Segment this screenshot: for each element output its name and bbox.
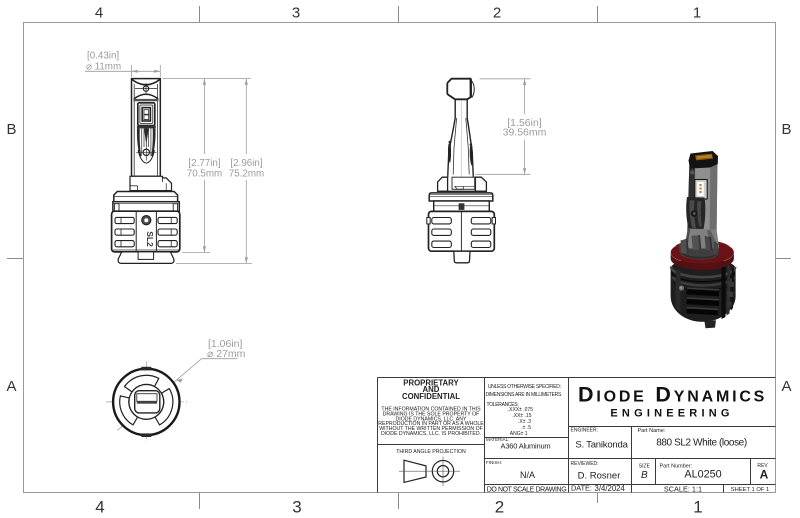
svg-text:AL0250: AL0250	[684, 469, 721, 481]
svg-text:.XXX± .075: .XXX± .075	[508, 407, 533, 413]
svg-text:2: 2	[493, 5, 501, 22]
svg-text:⌀ 11mm: ⌀ 11mm	[86, 62, 121, 73]
svg-text:⌀ 27mm: ⌀ 27mm	[207, 348, 246, 360]
svg-text:UNLESS OTHERWISE SPECIFIED:: UNLESS OTHERWISE SPECIFIED:	[488, 384, 561, 390]
svg-text:4: 4	[95, 5, 103, 22]
svg-text:FINISH:: FINISH:	[486, 460, 502, 465]
svg-text:75.2mm: 75.2mm	[229, 169, 264, 180]
svg-text:70.5mm: 70.5mm	[187, 169, 222, 180]
svg-text:3: 3	[292, 5, 300, 22]
svg-text:.XX± .15: .XX± .15	[512, 413, 531, 419]
svg-text:880 SL2 White (loose): 880 SL2 White (loose)	[656, 438, 747, 449]
svg-text:ENGINEERING: ENGINEERING	[610, 408, 733, 420]
svg-text:3/4/2024: 3/4/2024	[595, 484, 626, 493]
svg-text:1: 1	[693, 5, 701, 22]
svg-text:A: A	[781, 378, 791, 395]
svg-text:SHEET 1 OF 1: SHEET 1 OF 1	[731, 487, 770, 493]
svg-text:3: 3	[292, 498, 301, 517]
svg-text:.± .5: .± .5	[521, 425, 531, 431]
svg-text:DIODE DYNAMICS, LLC. IS PROHIB: DIODE DYNAMICS, LLC. IS PROHIBITED.	[381, 431, 481, 437]
svg-text:REVIEWED:: REVIEWED:	[571, 461, 599, 467]
svg-text:B: B	[6, 121, 16, 138]
svg-text:2: 2	[495, 498, 504, 517]
svg-text:SL2: SL2	[145, 231, 155, 247]
svg-text:[2.96in]: [2.96in]	[230, 158, 262, 169]
svg-text:S. Tanikonda: S. Tanikonda	[575, 440, 628, 451]
svg-text:DIMENSIONS ARE IN MILLIMETERS: DIMENSIONS ARE IN MILLIMETERS	[486, 392, 562, 398]
svg-text:A: A	[6, 378, 16, 395]
svg-text:A360 Aluminum: A360 Aluminum	[501, 442, 551, 451]
svg-text:CONFIDENTIAL: CONFIDENTIAL	[402, 392, 460, 401]
svg-text:D. Rosner: D. Rosner	[578, 471, 621, 482]
svg-text:39.56mm: 39.56mm	[503, 127, 547, 139]
svg-text:[0.43in]: [0.43in]	[87, 51, 119, 62]
svg-text:DATE:: DATE:	[571, 484, 592, 493]
svg-text:SCALE: 1:1: SCALE: 1:1	[664, 485, 702, 494]
svg-text:4: 4	[95, 498, 104, 517]
svg-text:B: B	[781, 121, 791, 138]
svg-text:B: B	[641, 470, 648, 481]
svg-text:N/A: N/A	[520, 470, 535, 480]
svg-text:[2.77in]: [2.77in]	[188, 158, 220, 169]
svg-text:SIZE: SIZE	[639, 464, 651, 470]
svg-text:1: 1	[693, 498, 702, 517]
svg-text:DO NOT SCALE DRAWING: DO NOT SCALE DRAWING	[487, 487, 567, 494]
svg-text:A: A	[760, 468, 769, 482]
svg-text:THIRD ANGLE PROJECTION: THIRD ANGLE PROJECTION	[396, 449, 466, 455]
svg-text:Part Name:: Part Name:	[638, 428, 666, 434]
svg-text:ENGINEER:: ENGINEER:	[571, 428, 599, 434]
svg-text:ANG± 1: ANG± 1	[510, 431, 528, 437]
svg-text:.X± .3: .X± .3	[518, 419, 531, 425]
